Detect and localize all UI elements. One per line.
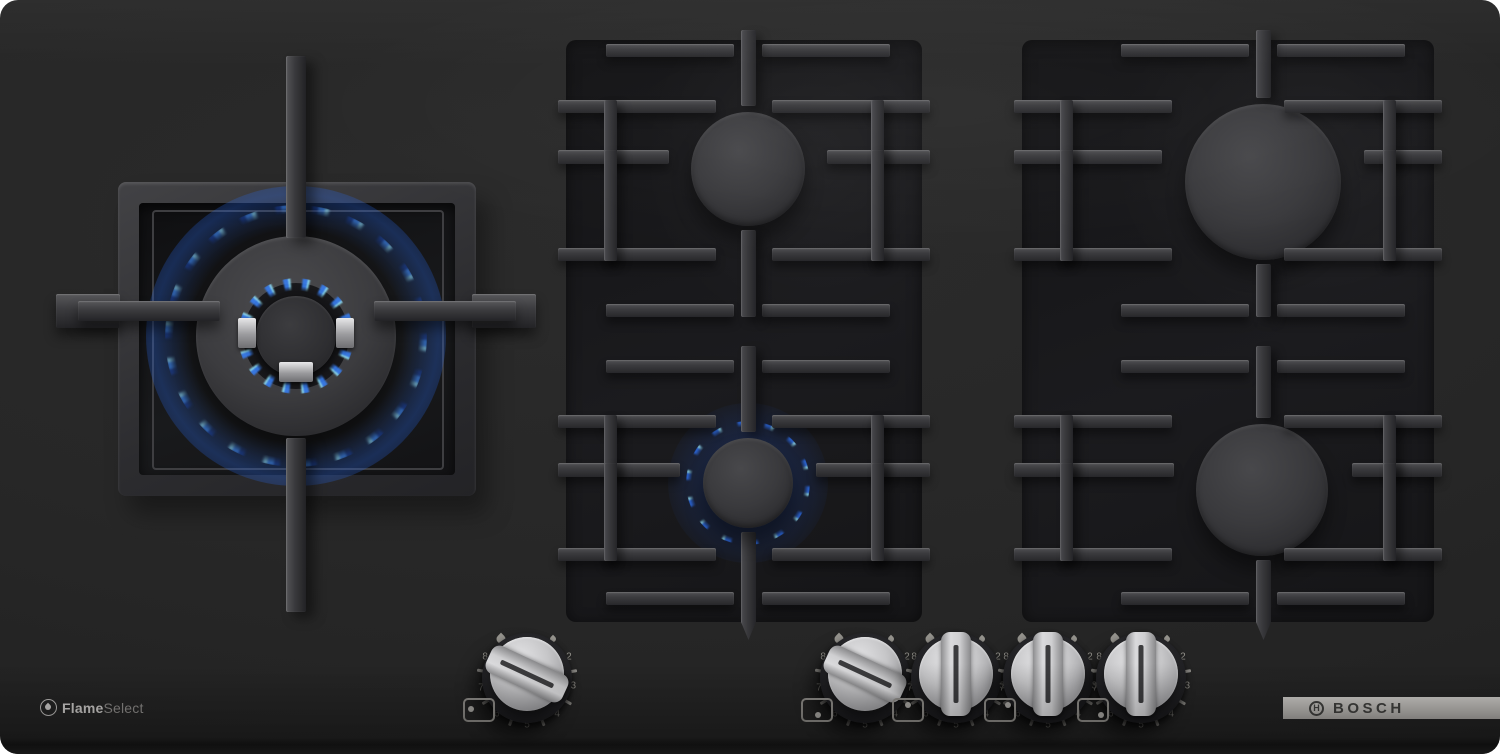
- grate-bar: [741, 230, 756, 317]
- burner-knob-right-front[interactable]: 2345678: [1081, 618, 1201, 738]
- grate-bar: [772, 100, 884, 113]
- grate-bar: [604, 100, 716, 113]
- burner-knob-wok[interactable]: 2345678: [467, 618, 587, 738]
- burner-cap-right-back: [1185, 104, 1341, 260]
- grate-bar: [1277, 44, 1405, 57]
- grate-bar: [1121, 44, 1249, 57]
- bosch-logo-text: BOSCH: [1333, 700, 1405, 717]
- grate-bar: [1364, 150, 1442, 164]
- knob-cap: [828, 637, 902, 711]
- grate-bar: [762, 592, 890, 605]
- grate-bar: [1256, 30, 1271, 98]
- grate-bar: [762, 44, 890, 57]
- knob-grip: [941, 632, 971, 716]
- grate-bar: [604, 463, 617, 561]
- grate-bar: [1060, 463, 1073, 561]
- grate-bar: [1060, 248, 1172, 261]
- grate-bar: [1060, 415, 1172, 428]
- knob-cap: [1011, 637, 1085, 711]
- grate-bar: [1284, 548, 1396, 561]
- grate-bar: [1277, 592, 1405, 605]
- grate-bar: [604, 415, 716, 428]
- knob-cap: [1104, 637, 1178, 711]
- grate-bar: [1121, 304, 1249, 317]
- wok-finger-bottom: [286, 438, 306, 612]
- grate-bar: [871, 463, 884, 561]
- grate-bar: [762, 304, 890, 317]
- grate-bar: [1284, 415, 1396, 428]
- grate-bar: [1014, 150, 1162, 164]
- front-edge-shadow: [0, 737, 1500, 754]
- grate-bar: [1383, 150, 1396, 261]
- flameselect-label: FlameSelect: [62, 700, 144, 716]
- flameselect-logo: FlameSelect: [40, 699, 144, 716]
- grate-bar: [1284, 100, 1396, 113]
- grate-bar: [1256, 346, 1271, 418]
- knob-grip: [1033, 632, 1063, 716]
- grate-bar: [772, 548, 884, 561]
- knob-grip: [1126, 632, 1156, 716]
- grate-bar: [1256, 264, 1271, 317]
- wok-finger-right: [374, 301, 516, 321]
- wok-finger-top: [286, 56, 306, 238]
- grate-bar: [606, 592, 734, 605]
- grate-bar: [604, 548, 716, 561]
- grate-bar: [1014, 463, 1174, 477]
- wok-finger-left: [78, 301, 220, 321]
- flame-circle-icon: [40, 699, 57, 716]
- burner-cap-middle-back: [691, 112, 805, 226]
- grate-bar: [741, 346, 756, 432]
- knob-grip: [483, 643, 572, 706]
- grate-bar: [604, 150, 617, 261]
- grate-bar: [1060, 150, 1073, 261]
- burner-cap-middle-front: [703, 438, 793, 528]
- grate-bar: [1383, 463, 1396, 561]
- grate-bar: [1060, 100, 1172, 113]
- grate-bar: [558, 463, 680, 477]
- grate-bar: [604, 248, 716, 261]
- grate-bar: [772, 415, 884, 428]
- grate-bar: [606, 360, 734, 373]
- grate-bar: [1060, 548, 1172, 561]
- grate-bar: [741, 30, 756, 106]
- igniter-clip-right: [336, 318, 354, 348]
- burner-cap-right-front: [1196, 424, 1328, 556]
- grate-bar: [772, 248, 884, 261]
- knob-cap: [919, 637, 993, 711]
- grate-bar: [1277, 360, 1405, 373]
- burner-position-icon: [801, 698, 833, 722]
- grate-bar: [1284, 248, 1396, 261]
- burner-position-icon: [984, 698, 1016, 722]
- grate-bar: [871, 150, 884, 261]
- grate-bar: [741, 532, 756, 640]
- burner-position-icon: [463, 698, 495, 722]
- igniter-clip-bottom: [279, 362, 313, 382]
- burner-position-icon: [1077, 698, 1109, 722]
- gas-cooktop: 2345678 2345678 2345678 2345678 2345678 …: [0, 0, 1500, 754]
- grate-bar: [606, 44, 734, 57]
- burner-position-icon: [892, 698, 924, 722]
- grate-bar: [1352, 463, 1442, 477]
- grate-bar: [1121, 360, 1249, 373]
- grate-bar: [1121, 592, 1249, 605]
- bosch-anchor-icon: H: [1309, 701, 1324, 716]
- knob-cap: [490, 637, 564, 711]
- grate-bar: [762, 360, 890, 373]
- grate-bar: [1256, 560, 1271, 640]
- grate-bar: [606, 304, 734, 317]
- bosch-logo-bar: H BOSCH: [1283, 697, 1500, 719]
- grate-bar: [1277, 304, 1405, 317]
- igniter-clip-left: [238, 318, 256, 348]
